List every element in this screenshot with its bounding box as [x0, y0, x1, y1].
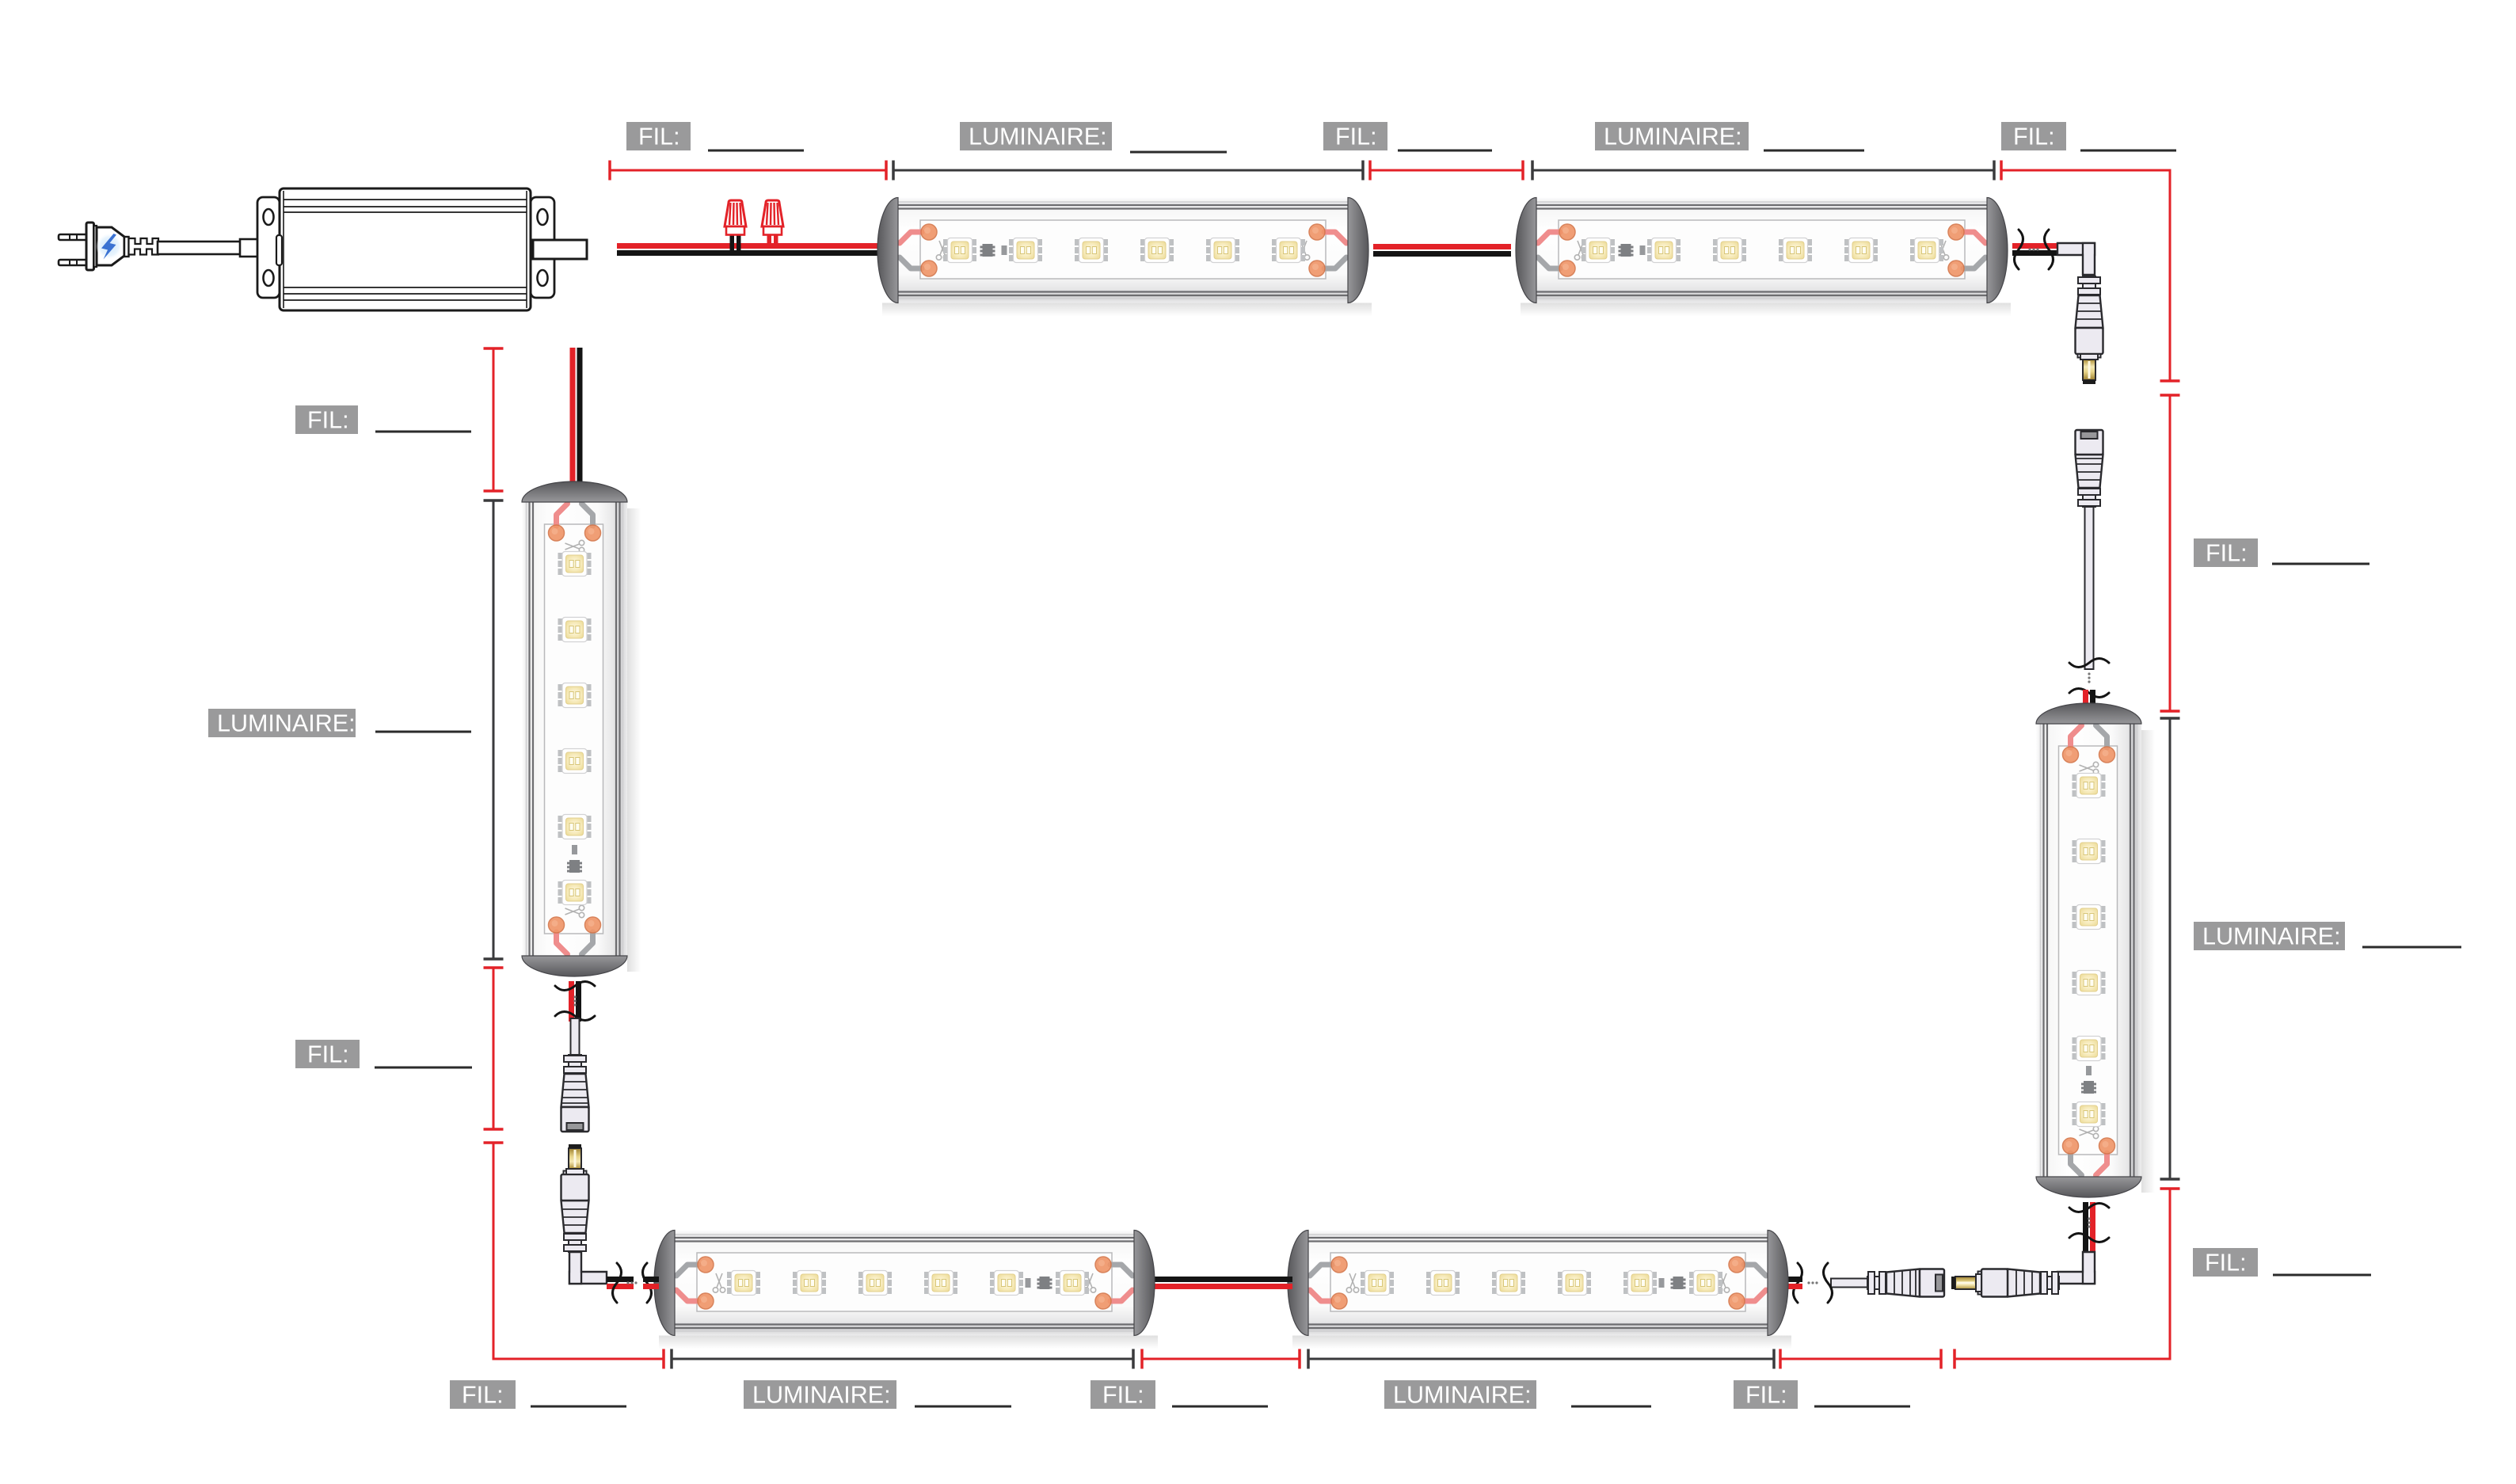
svg-text:FIL:: FIL:: [1745, 1382, 1787, 1409]
svg-text:LUMINAIRE:: LUMINAIRE:: [1604, 124, 1742, 150]
svg-text:LUMINAIRE:: LUMINAIRE:: [969, 124, 1107, 150]
svg-text:FIL:: FIL:: [2206, 540, 2248, 567]
svg-text:FIL:: FIL:: [1335, 124, 1377, 150]
svg-text:FIL:: FIL:: [638, 124, 680, 150]
svg-text:LUMINAIRE:: LUMINAIRE:: [2202, 923, 2341, 950]
svg-text:LUMINAIRE:: LUMINAIRE:: [752, 1382, 891, 1409]
svg-text:FIL:: FIL:: [462, 1382, 504, 1409]
svg-text:LUMINAIRE:: LUMINAIRE:: [217, 710, 356, 737]
svg-text:LUMINAIRE:: LUMINAIRE:: [1393, 1382, 1532, 1409]
svg-text:FIL:: FIL:: [1102, 1382, 1144, 1409]
svg-text:FIL:: FIL:: [2013, 124, 2055, 150]
svg-text:FIL:: FIL:: [307, 1041, 349, 1068]
svg-text:FIL:: FIL:: [307, 407, 349, 434]
svg-text:FIL:: FIL:: [2205, 1250, 2247, 1277]
